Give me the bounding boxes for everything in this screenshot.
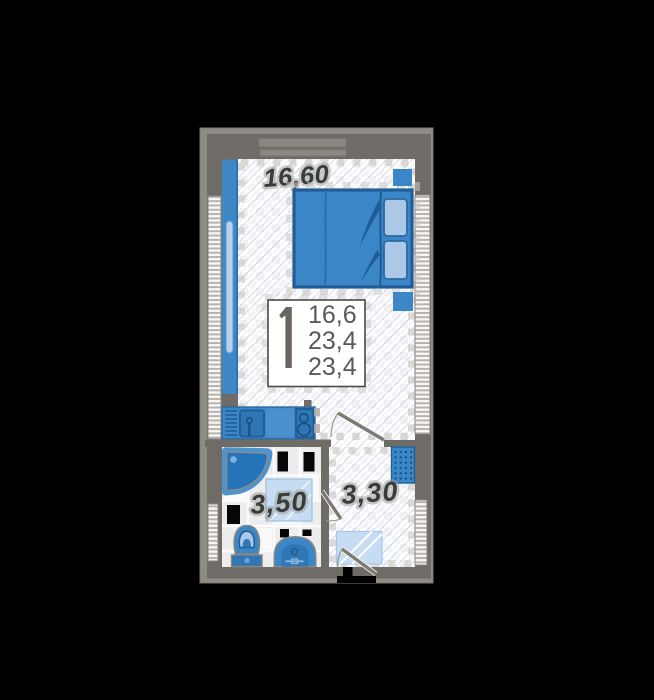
svg-text:16,60: 16,60 xyxy=(262,160,330,193)
svg-text:3,50: 3,50 xyxy=(249,486,308,520)
svg-text:23,4: 23,4 xyxy=(308,353,357,381)
svg-text:16,6: 16,6 xyxy=(308,301,357,329)
svg-text:3,30: 3,30 xyxy=(340,476,399,510)
svg-text:23,4: 23,4 xyxy=(308,327,357,355)
